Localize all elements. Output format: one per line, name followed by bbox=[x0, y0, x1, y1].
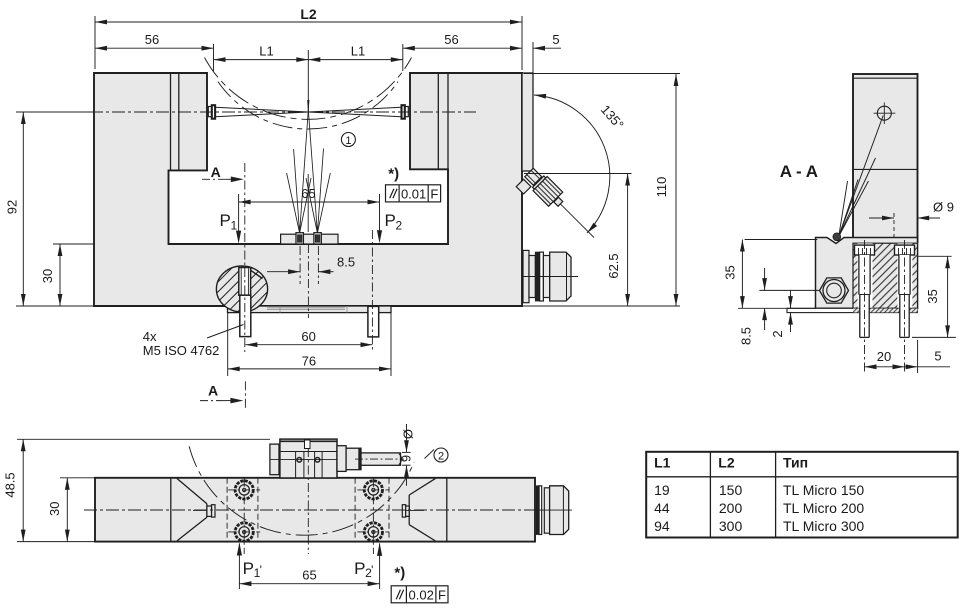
svg-text:94: 94 bbox=[654, 518, 670, 534]
svg-text:A: A bbox=[208, 382, 218, 398]
svg-text:4x: 4x bbox=[143, 329, 157, 344]
svg-text:P: P bbox=[385, 211, 396, 230]
svg-text:F: F bbox=[430, 186, 438, 201]
svg-text:76: 76 bbox=[302, 353, 316, 368]
svg-text:': ' bbox=[371, 563, 373, 577]
svg-text:2: 2 bbox=[770, 330, 785, 337]
svg-text:TL Micro 300: TL Micro 300 bbox=[783, 518, 864, 534]
svg-text:TL Micro 150: TL Micro 150 bbox=[783, 482, 864, 498]
svg-text:300: 300 bbox=[719, 518, 743, 534]
svg-text:8.5: 8.5 bbox=[739, 327, 754, 345]
svg-text:2: 2 bbox=[438, 450, 444, 462]
svg-text:110: 110 bbox=[654, 177, 669, 198]
svg-text:48.5: 48.5 bbox=[3, 472, 18, 497]
svg-text:L1: L1 bbox=[351, 44, 365, 59]
svg-text:1: 1 bbox=[345, 135, 351, 147]
svg-text:TL Micro 200: TL Micro 200 bbox=[783, 500, 864, 516]
svg-text:*): *) bbox=[394, 564, 405, 581]
svg-text:0.02: 0.02 bbox=[409, 587, 434, 602]
svg-text:200: 200 bbox=[719, 500, 743, 516]
svg-text:5: 5 bbox=[552, 32, 559, 47]
svg-text:M5 ISO 4762: M5 ISO 4762 bbox=[143, 343, 220, 358]
svg-text:P: P bbox=[220, 211, 231, 230]
svg-text:6: 6 bbox=[399, 455, 414, 462]
svg-text:92: 92 bbox=[5, 200, 20, 214]
svg-text:': ' bbox=[260, 563, 262, 577]
svg-text:P: P bbox=[354, 559, 365, 578]
svg-text:A: A bbox=[211, 164, 221, 180]
svg-text:L1: L1 bbox=[259, 44, 273, 59]
svg-text:30: 30 bbox=[40, 269, 55, 283]
svg-text:35: 35 bbox=[723, 265, 738, 279]
svg-text:Тип: Тип bbox=[783, 454, 808, 470]
svg-text:5: 5 bbox=[934, 348, 941, 363]
svg-text:L2: L2 bbox=[300, 6, 317, 22]
svg-text:65: 65 bbox=[301, 186, 315, 201]
svg-text:1: 1 bbox=[231, 219, 238, 233]
svg-text:F: F bbox=[438, 587, 446, 602]
svg-text:56: 56 bbox=[145, 32, 159, 47]
svg-text:A - A: A - A bbox=[780, 162, 818, 181]
svg-text:44: 44 bbox=[654, 500, 670, 516]
svg-text:60: 60 bbox=[301, 329, 315, 344]
svg-text:2: 2 bbox=[396, 219, 403, 233]
svg-text:Ø: Ø bbox=[401, 429, 416, 439]
svg-text:56: 56 bbox=[444, 32, 458, 47]
svg-text:8.5: 8.5 bbox=[337, 255, 355, 270]
svg-text:35: 35 bbox=[925, 289, 940, 303]
svg-text:62.5: 62.5 bbox=[606, 253, 621, 278]
svg-text:Ø 9: Ø 9 bbox=[933, 200, 954, 215]
svg-text:30: 30 bbox=[47, 502, 62, 516]
svg-text:*): *) bbox=[388, 166, 399, 183]
svg-text:L1: L1 bbox=[654, 454, 671, 470]
svg-text:65: 65 bbox=[302, 567, 316, 582]
svg-text:19: 19 bbox=[654, 482, 670, 498]
svg-text:L2: L2 bbox=[718, 454, 735, 470]
svg-text:0.01: 0.01 bbox=[401, 186, 426, 201]
svg-text:150: 150 bbox=[719, 482, 743, 498]
svg-text:P: P bbox=[243, 559, 254, 578]
svg-text:20: 20 bbox=[877, 349, 891, 364]
